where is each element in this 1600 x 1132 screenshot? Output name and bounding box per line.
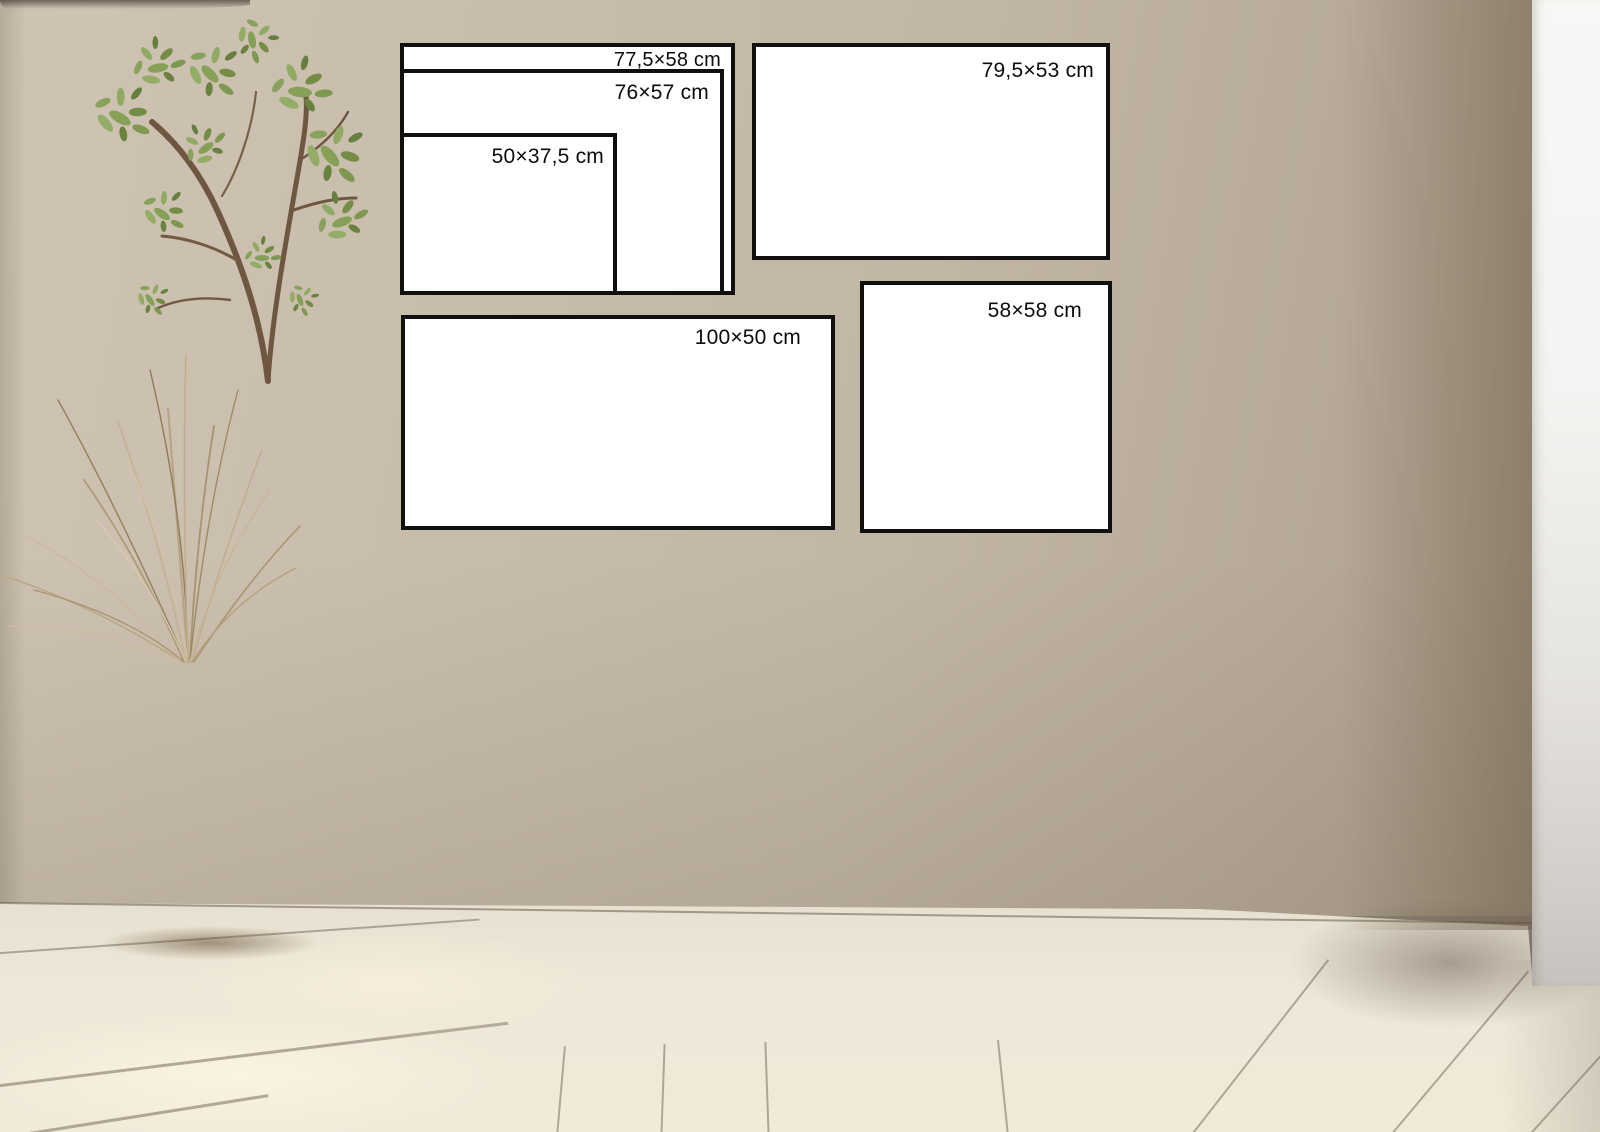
size-label: 100×50 cm (695, 327, 801, 349)
size-frame-58x58: 58×58 cm (860, 281, 1112, 533)
size-label: 76×57 cm (615, 82, 709, 104)
size-label: 58×58 cm (988, 300, 1082, 322)
wall-corner-shading (1340, 0, 1532, 930)
wicker-basket-table (112, 768, 308, 952)
size-label: 79,5×53 cm (982, 60, 1094, 82)
size-frame-79-5x53: 79,5×53 cm (752, 43, 1110, 260)
size-label: 50×37,5 cm (492, 146, 604, 168)
size-frame-100x50: 100×50 cm (401, 315, 835, 530)
bedroom-mockup-scene: 77,5×58 cm 76×57 cm 50×37,5 cm 79,5×53 c… (0, 0, 1600, 1132)
white-wall-strip (1532, 0, 1600, 986)
size-label: 77,5×58 cm (614, 49, 721, 71)
size-frame-50x37-5: 50×37,5 cm (400, 133, 617, 295)
green-branch-plant (0, 0, 410, 410)
